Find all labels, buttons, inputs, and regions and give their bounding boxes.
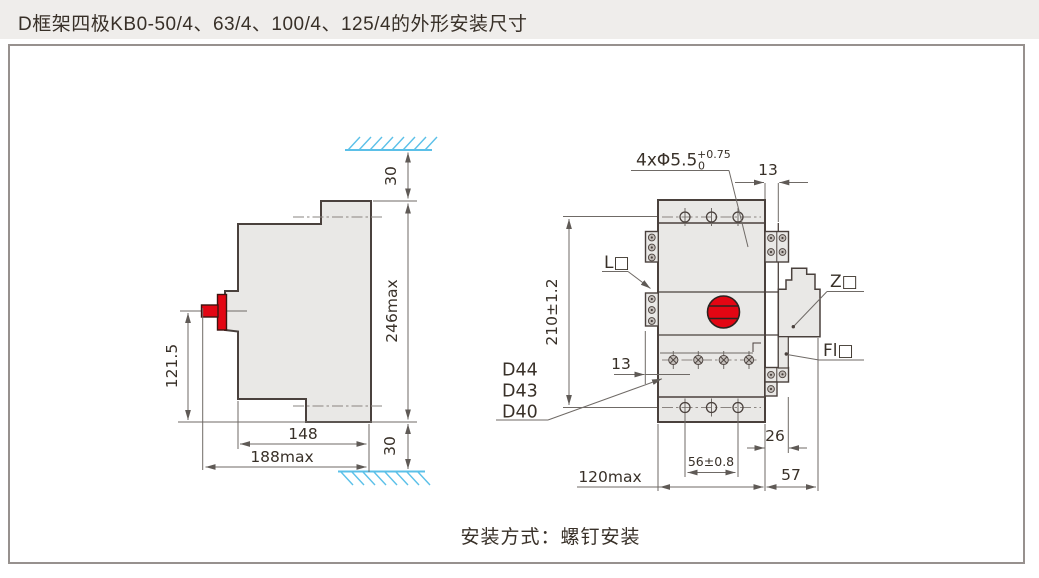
dim-hole-span: 56±0.8	[688, 454, 736, 473]
dim-text: 57	[781, 466, 801, 484]
dim-text: 120max	[578, 468, 641, 486]
terminal-block-right-upper	[765, 232, 789, 263]
dim-text: 148	[288, 425, 318, 443]
accessory-fl-label: Fl□	[785, 341, 864, 361]
dim-mount-pitch: 210±1.2	[543, 217, 657, 408]
dim-text: 30	[382, 166, 400, 186]
accessory-z-outline	[778, 268, 820, 336]
label-text: D44	[502, 361, 538, 381]
dim-text: 26	[765, 427, 785, 445]
front-view: 13 4xΦ5.5 +0.75 0 210±1.2 L□	[496, 148, 864, 491]
dim-top-gap: 30	[382, 153, 408, 199]
label-text: D43	[502, 382, 538, 402]
dim-text: 188max	[250, 448, 313, 466]
terminal-block-left-upper	[646, 232, 659, 263]
terminal-left-label: L□	[602, 253, 651, 289]
terminal-block-right-lower	[765, 368, 789, 397]
dim-text: 56±0.8	[688, 454, 734, 469]
label-text: 4xΦ5.5	[636, 151, 697, 171]
dim-rail-offset: 26	[747, 427, 807, 448]
label-text: Z□	[830, 272, 858, 292]
side-view: 30 246max 121.5 30	[163, 137, 437, 485]
floor-hatch-icon	[338, 472, 430, 486]
dim-text: 121.5	[163, 344, 181, 388]
dim-width: 120max 57	[577, 466, 816, 487]
accessory-fl-strip	[778, 337, 788, 368]
label-text: Fl□	[823, 341, 854, 361]
dim-height: 246max	[373, 201, 417, 420]
dim-handle-height: 121.5	[163, 313, 188, 420]
terminal-block-left-lower	[646, 293, 659, 326]
red-button	[708, 296, 740, 328]
mounting-note: 安装方式：螺钉安装	[62, 522, 1039, 549]
label-text: L□	[604, 253, 630, 273]
dim-text: 30	[381, 436, 399, 456]
dim-bottom-gap: 30	[381, 424, 408, 469]
wall-hatch-icon	[345, 137, 437, 150]
model-labels: D44 D43 D40	[496, 361, 662, 423]
dim-text: 246max	[383, 279, 401, 342]
dim-text: 13	[611, 355, 631, 373]
dim-text: 13	[758, 161, 778, 179]
technical-drawing: 30 246max 121.5 30	[0, 0, 1039, 578]
dim-text: 210±1.2	[543, 278, 561, 345]
page: D框架四极KB0-50/4、63/4、100/4、125/4的外形安装尺寸	[0, 0, 1039, 578]
